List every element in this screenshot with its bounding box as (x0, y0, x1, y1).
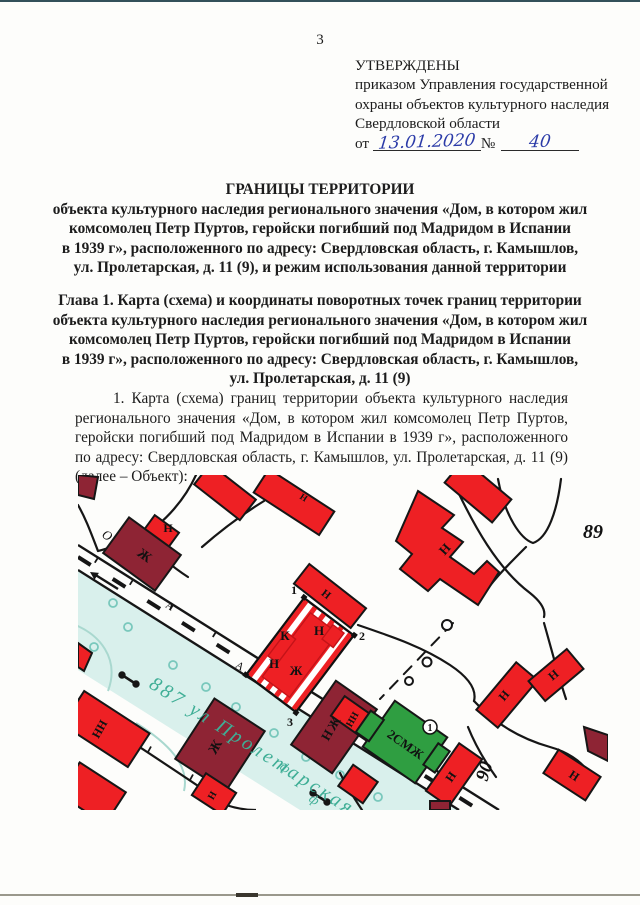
approval-line: Свердловской области (355, 114, 623, 133)
page-number: 3 (0, 32, 640, 49)
scan-bottom-mark (236, 893, 258, 897)
road-letter-a1: А (163, 599, 176, 613)
chapter-line: объекта культурного наследия регионально… (38, 311, 602, 331)
chapter-line: в 1939 г», расположенного по адресу: Све… (38, 350, 602, 370)
document-title: ГРАНИЦЫ ТЕРРИТОРИИ объекта культурного н… (38, 180, 602, 278)
date-underline: 13.01.2020 (373, 134, 481, 151)
handwritten-number: 40 (528, 132, 552, 152)
label-k-object: К (280, 628, 290, 643)
approval-date-line: от 13.01.2020№ 40 (355, 134, 623, 153)
building-red-top-center (254, 475, 335, 535)
label-n-object: Н (314, 623, 324, 638)
corner-point-2: 2 (359, 629, 365, 643)
chapter-heading: Глава 1. Карта (схема) и координаты пово… (38, 291, 602, 389)
number-underline: 40 (501, 134, 579, 151)
green-building-number-badge: 1 (423, 720, 437, 734)
title-line: в 1939 г», расположенного по адресу: Све… (38, 239, 602, 259)
scan-top-edge (0, 0, 640, 2)
label-n-object2: Н (269, 656, 279, 671)
title-line: ул. Пролетарская, д. 11 (9), и режим исп… (38, 258, 602, 278)
chapter-line: комсомолец Петр Пуртов, геройски погибши… (38, 330, 602, 350)
body-paragraph: 1. Карта (схема) границ территории объек… (75, 389, 568, 487)
approval-line: УТВЕРЖДЕНЫ (355, 56, 623, 75)
corner-point-1: 1 (291, 583, 297, 597)
label-n-annex: Н (163, 521, 173, 535)
number-sign: № (481, 135, 496, 152)
approval-line: приказом Управления государственной (355, 75, 623, 94)
label-zh-object: Ж (290, 663, 303, 678)
scan-bottom-edge (0, 894, 640, 896)
building-maroon-edge (78, 475, 98, 499)
title-line: комсомолец Петр Пуртов, геройски погибши… (38, 219, 602, 239)
chapter-line: Глава 1. Карта (схема) и координаты пово… (38, 291, 602, 311)
building-maroon-bottom-sliver (430, 801, 450, 810)
chapter-line: ул. Пролетарская, д. 11 (9) (38, 369, 602, 389)
approval-line: охраны объектов культурного наследия (355, 95, 623, 114)
green-building-number: 1 (428, 723, 433, 734)
approval-block: УТВЕРЖДЕНЫ приказом Управления государст… (355, 56, 623, 153)
handwritten-date: 13.01.2020 (377, 131, 476, 154)
block-number-89: 89 (583, 521, 603, 543)
corner-point-3: 3 (287, 715, 293, 729)
title-line: объекта культурного наследия регионально… (38, 200, 602, 220)
date-label: от (355, 135, 369, 152)
title-heading: ГРАНИЦЫ ТЕРРИТОРИИ (38, 180, 602, 200)
territory-map: 1 2 3 Ж Н Н Н Н НЖ Ж НН Н НН 2СМЖ Н Н Н … (78, 475, 608, 810)
building-red-left-bottom (78, 762, 126, 810)
building-maroon-right-edge (584, 727, 608, 761)
map-canvas: 1 2 3 Ж Н Н Н Н НЖ Ж НН Н НН 2СМЖ Н Н Н … (78, 475, 608, 810)
document-page: { "page": { "number": "3" }, "approval":… (0, 0, 640, 905)
block-number-90: 90 (472, 759, 498, 784)
